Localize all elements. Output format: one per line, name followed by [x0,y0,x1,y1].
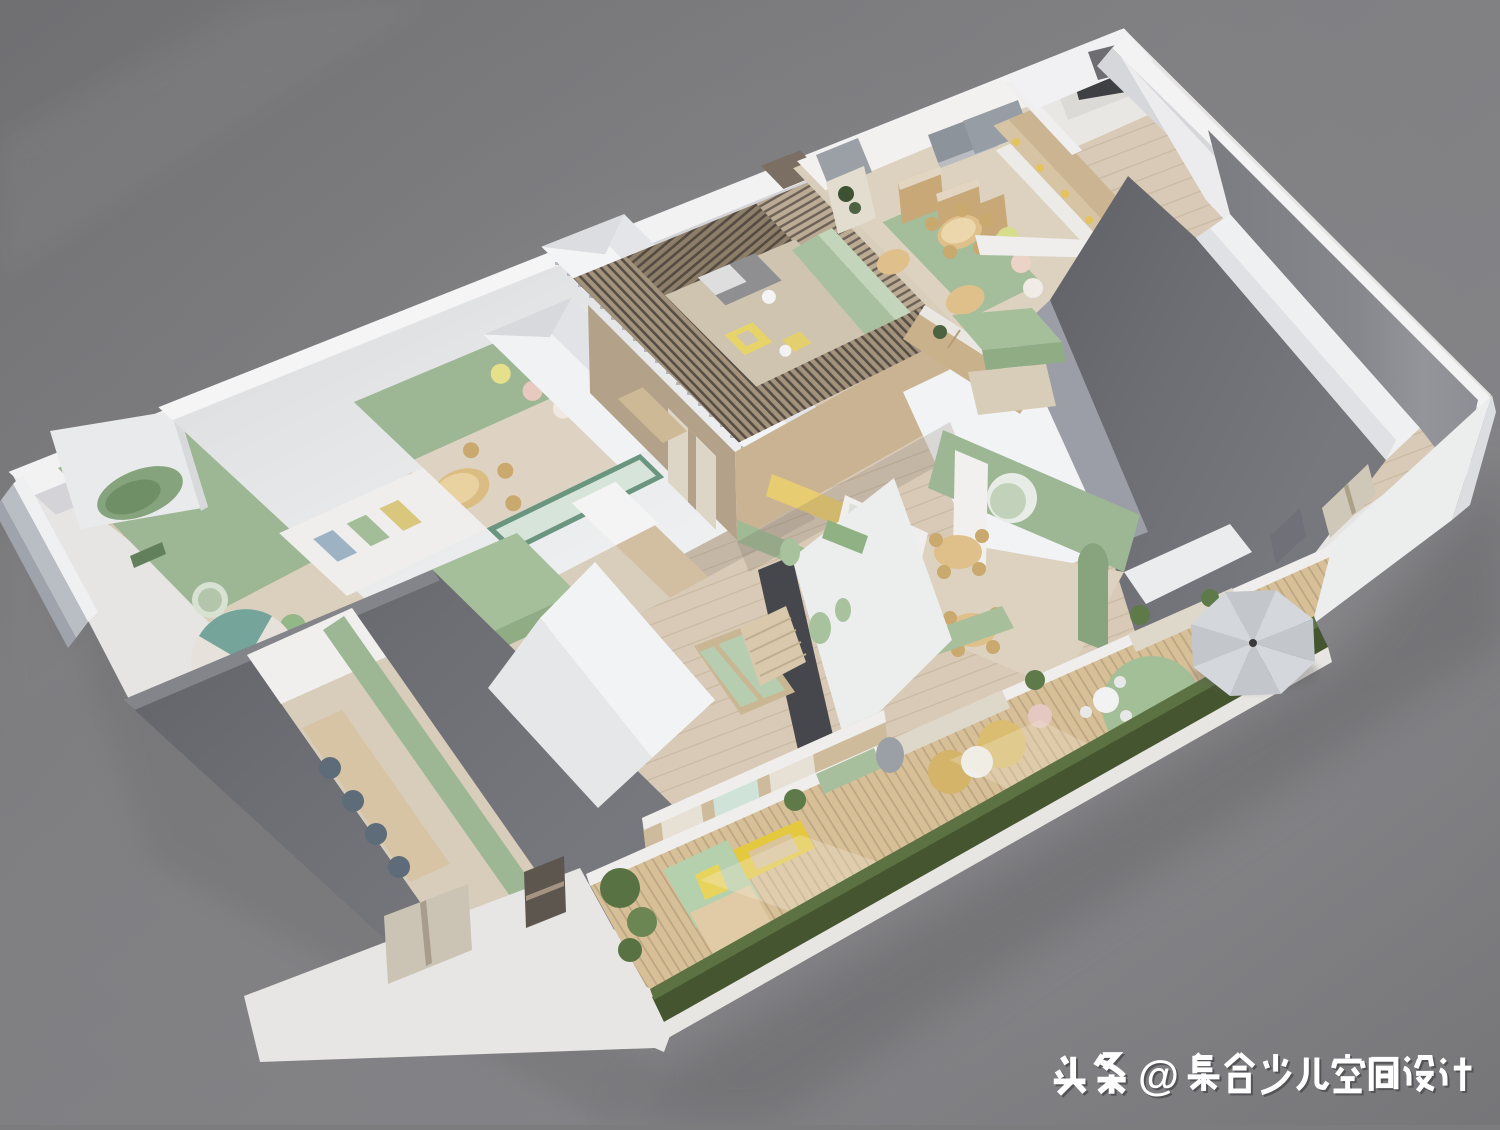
svg-text:@: @ [1138,1052,1179,1099]
